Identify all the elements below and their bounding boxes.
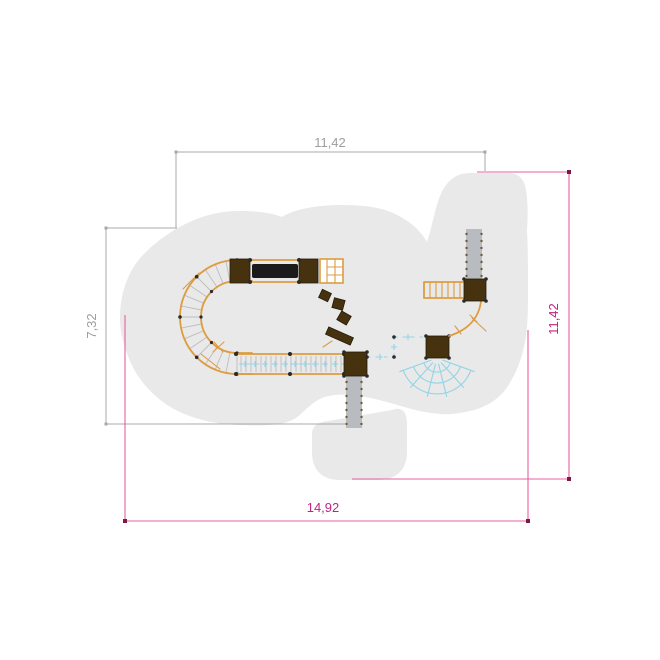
dim-tick <box>105 227 108 230</box>
slide-top <box>466 229 482 279</box>
platform-slide-bottom <box>344 352 367 376</box>
platform-slide-top <box>464 279 486 301</box>
rope-anchor <box>392 335 396 339</box>
plan-svg: 11,42 7,32 11,42 14,92 <box>0 0 660 660</box>
dim-tick <box>123 519 127 523</box>
platform-spider-net <box>426 336 449 358</box>
platform-left <box>230 259 250 283</box>
rope-anchor <box>365 355 369 359</box>
dimension-top-label: 11,42 <box>314 135 346 150</box>
dim-tick <box>567 170 571 174</box>
slide-bottom <box>346 376 362 428</box>
rope-anchor <box>392 355 396 359</box>
dim-tick <box>484 151 487 154</box>
dimension-left-label: 7,32 <box>84 313 99 338</box>
dimension-bottom-label: 14,92 <box>307 500 340 515</box>
climbing-panel <box>320 259 343 283</box>
net-tunnel <box>252 264 298 278</box>
dim-tick <box>175 151 178 154</box>
dim-tick <box>567 477 571 481</box>
platform-right <box>299 259 318 283</box>
plan-drawing-canvas: 11,42 7,32 11,42 14,92 <box>0 0 660 660</box>
dim-tick <box>105 423 108 426</box>
dimension-right-label: 11,42 <box>546 303 561 335</box>
dim-tick <box>526 519 530 523</box>
